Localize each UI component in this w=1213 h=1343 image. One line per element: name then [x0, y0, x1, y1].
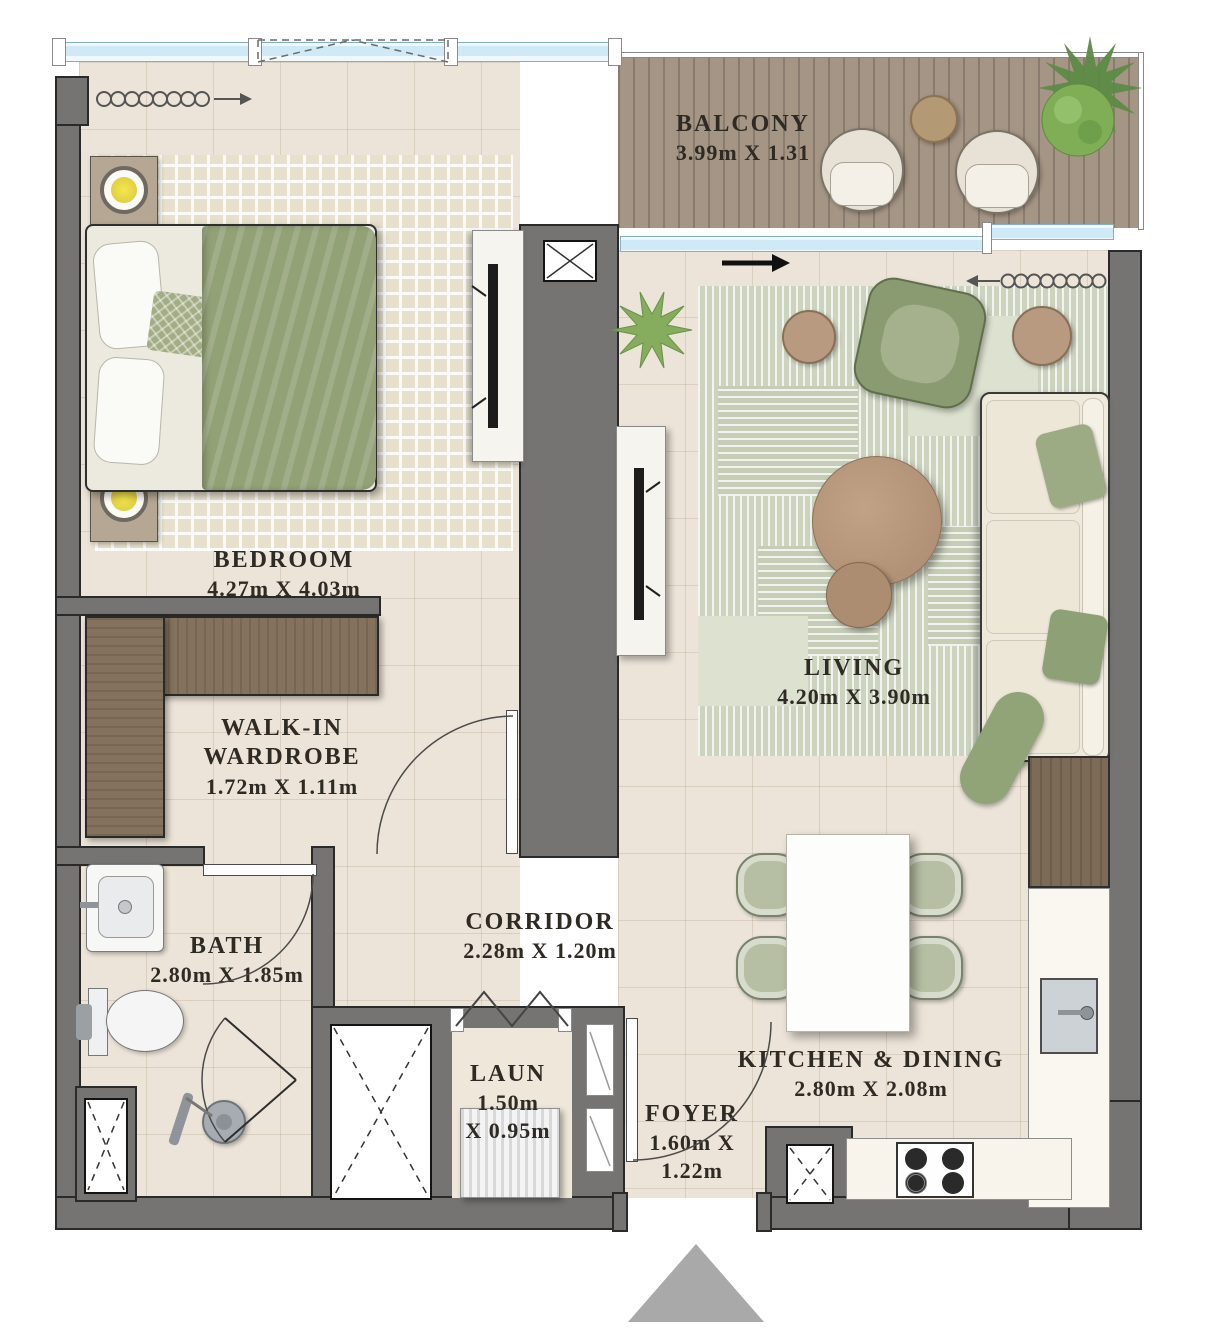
kitchen-tall-cabinet	[1028, 756, 1110, 888]
bed-pillow	[92, 356, 165, 466]
faucet-arm	[1058, 1010, 1084, 1015]
lamp-glow	[111, 177, 137, 203]
label-bedroom: BEDROOM 4.27m X 4.03m	[207, 546, 361, 603]
tv-bedroom	[488, 264, 498, 428]
label-bath: BATH 2.80m X 1.85m	[150, 932, 304, 989]
entry-jamb-right	[756, 1192, 772, 1232]
hall-cupboard-door	[586, 1108, 614, 1172]
balcony-rail-top	[616, 52, 1144, 58]
bedroom-window	[58, 42, 618, 62]
burner	[942, 1148, 964, 1170]
living-window-a	[620, 236, 992, 252]
wardrobe-cabinet-side	[85, 616, 165, 838]
window-post	[444, 38, 458, 66]
shaft-x-box-icon	[786, 1144, 834, 1204]
label-wardrobe: WALK-IN WARDROBE 1.72m X 1.11m	[203, 714, 360, 801]
window-post	[608, 38, 622, 66]
wall-central-column	[519, 224, 619, 858]
bath-door	[203, 864, 317, 876]
toilet-bowl	[106, 990, 184, 1052]
label-kitchen: KITCHEN & DINING 2.80m X 2.08m	[738, 1046, 1005, 1103]
window-post	[982, 222, 992, 254]
burner	[942, 1172, 964, 1194]
balcony-chair-seat	[830, 162, 894, 206]
label-corridor: CORRIDOR 2.28m X 1.20m	[463, 908, 617, 965]
tv-living	[634, 468, 644, 620]
burner	[905, 1148, 927, 1170]
floor-plan: BALCONY 3.99m X 1.31 BEDROOM 4.27m X 4.0…	[0, 0, 1213, 1343]
sink-drain	[118, 900, 132, 914]
side-table	[782, 310, 836, 364]
coffee-table-small	[826, 562, 892, 628]
wall-topleft-stub	[55, 76, 89, 126]
side-table	[1012, 306, 1072, 366]
bed-blanket	[202, 226, 376, 490]
entry-door	[626, 1018, 638, 1162]
sofa-pillow	[1041, 608, 1109, 686]
shaft-x-box-icon	[84, 1098, 128, 1194]
shaft-x-box-icon	[543, 240, 597, 282]
bifold-jamb	[450, 1008, 464, 1032]
flush-plate	[76, 1004, 92, 1040]
wall-bath-top	[55, 846, 205, 866]
bath-faucet	[80, 902, 98, 908]
shaft-x-box-icon	[330, 1024, 432, 1200]
living-window-b	[988, 224, 1114, 240]
label-balcony: BALCONY 3.99m X 1.31	[676, 110, 810, 167]
hall-cupboard-door	[586, 1024, 614, 1096]
wall-left	[55, 76, 81, 1226]
entry-jamb-left	[612, 1192, 628, 1232]
window-post	[248, 38, 262, 66]
tv-panel-bedroom	[472, 230, 524, 462]
label-laundry: LAUN 1.50m X 0.95m	[465, 1060, 550, 1146]
wardrobe-door	[506, 710, 518, 854]
dining-table	[786, 834, 910, 1032]
entry-triangle-icon	[628, 1244, 764, 1322]
wall-right	[1108, 250, 1142, 1112]
label-foyer: FOYER 1.60m X 1.22m	[645, 1100, 739, 1186]
label-living: LIVING 4.20m X 3.90m	[777, 654, 931, 711]
window-post	[52, 38, 66, 66]
wall-bottom-left	[55, 1196, 625, 1230]
bifold-jamb	[558, 1008, 572, 1032]
balcony-table	[910, 95, 958, 143]
shower-head-center	[216, 1114, 232, 1130]
burner	[905, 1172, 927, 1194]
balcony-rail-right	[1138, 52, 1144, 230]
balcony-chair-seat	[965, 164, 1029, 208]
